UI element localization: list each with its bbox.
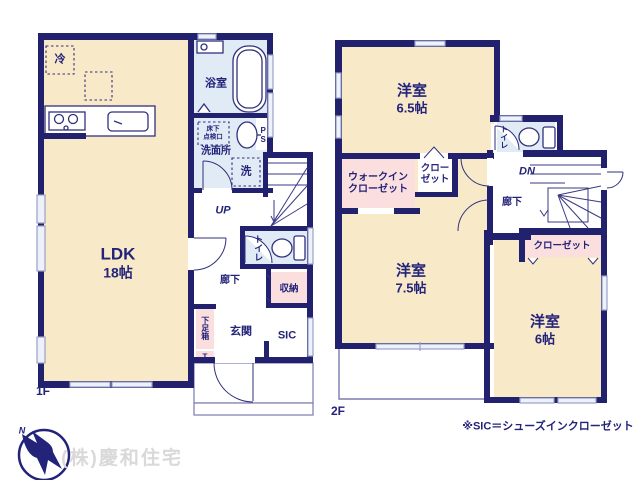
floorplan-page: LDK 18帖 冷 浴室 床下 点検口 洗面所 洗 PS DS UP トイレ 廊… [0,0,640,480]
toilet-bowl-icon [272,239,292,257]
label-toilet-1f: トイレ [253,235,264,262]
label-wic-line1: ウォークイン [348,172,408,184]
stairs-1f [268,163,307,226]
label-bedroom3-name: 洋室 [530,313,560,331]
label-shoebox: 下足箱 [200,316,209,340]
label-floor-2f: 2F [331,404,345,418]
label-closet-strip: クローゼット [533,240,590,251]
room-ldk [44,40,190,382]
label-hallway-2f: 廊下 [502,197,522,209]
label-stairs-dn: DN [519,166,535,179]
label-bedroom3-size: 6帖 [530,331,560,346]
floor-2f-plan [335,40,623,403]
label-fridge: 冷 [55,54,66,67]
label-wic-line2: クローゼット [348,184,408,196]
label-closet-small: クロー ゼット [421,163,450,185]
label-washroom: 洗面所 [201,146,231,158]
balcony [339,349,487,399]
label-bedroom1-size: 6.5帖 [396,100,427,115]
label-pipe-space: PS [258,126,267,144]
label-toilet-2f: トイレ [499,125,508,149]
label-bedroom1: 洋室 6.5帖 [396,82,427,115]
label-duct-space: DS [261,168,269,182]
label-bedroom2-name: 洋室 [395,262,426,280]
label-underfloor-line1: 床下 [203,125,223,133]
toilet-tank-icon [543,127,555,148]
label-ldk-name: LDK [101,245,136,265]
label-shoebox-t: T [203,352,208,361]
kitchen-halfwall [40,133,86,139]
label-washer: 洗 [241,166,252,179]
stairs-2f [530,165,601,228]
label-underfloor-line2: 点検口 [203,133,223,141]
compass-north-label: N [19,426,26,437]
kitchen-counter [45,106,155,136]
company-watermark: (株)慶和住宅 [61,448,183,470]
toilet-tank-icon [294,236,305,260]
label-floor-1f: 1F [36,384,50,398]
label-closet-line1: クロー [421,163,450,174]
label-stairs-up: UP [215,205,230,218]
label-bedroom2: 洋室 7.5帖 [395,262,426,295]
vanity-sink-icon [237,122,257,148]
label-underfloor-hatch: 床下 点検口 [203,125,223,140]
toilet-bowl-icon [519,128,539,146]
label-bath: 浴室 [205,78,227,91]
label-hallway-1f: 廊下 [220,275,240,287]
label-bedroom3: 洋室 6帖 [530,313,560,346]
label-bedroom2-size: 7.5帖 [395,280,426,295]
floor-1f-plan [37,33,313,415]
label-entrance: 玄関 [230,326,252,339]
sic-note: ※SIC＝シューズインクローゼット [462,421,633,434]
label-wic: ウォークイン クローゼット [348,172,408,196]
label-closet-line2: ゼット [421,174,450,185]
label-ldk: LDK 18帖 [101,245,136,282]
label-ldk-size: 18帖 [101,265,136,282]
label-sic: SIC [278,330,296,343]
label-bedroom1-name: 洋室 [396,82,427,100]
shower-icon [201,44,207,50]
label-storage: 収納 [279,283,298,294]
